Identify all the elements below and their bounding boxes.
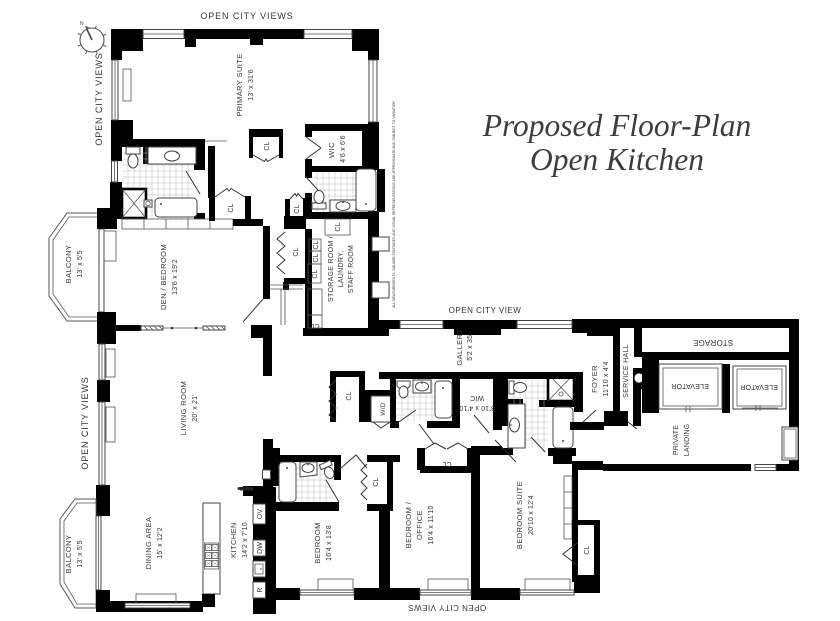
svg-text:ALL MEASUREMENTS, SQUARE FOOTA: ALL MEASUREMENTS, SQUARE FOOTAGES AND VI…: [392, 100, 396, 308]
svg-text:13' x 31'6: 13' x 31'6: [248, 69, 255, 101]
svg-text:ELEVATOR: ELEVATOR: [671, 382, 709, 389]
svg-text:W/D: W/D: [380, 402, 387, 415]
svg-text:BALCONY: BALCONY: [64, 245, 73, 284]
svg-text:CL: CL: [313, 253, 320, 262]
svg-text:OPEN CITY VIEWS: OPEN CITY VIEWS: [80, 376, 90, 469]
svg-text:OPEN CITY VIEWS: OPEN CITY VIEWS: [94, 52, 104, 145]
svg-text:BEDROOM: BEDROOM: [313, 522, 322, 564]
svg-text:CL: CL: [293, 247, 300, 256]
svg-text:20'10 x 12'4: 20'10 x 12'4: [528, 495, 535, 535]
svg-text:OFFICE: OFFICE: [415, 510, 424, 540]
svg-text:LAUNDRY,: LAUNDRY,: [338, 251, 345, 288]
svg-text:BEDROOM /: BEDROOM /: [404, 501, 413, 548]
svg-text:CL: CL: [294, 204, 301, 213]
svg-text:Proposed Floor-Plan: Proposed Floor-Plan: [482, 108, 752, 143]
svg-text:16'4 x 13'8: 16'4 x 13'8: [326, 525, 333, 561]
svg-text:OPEN CITY VIEW: OPEN CITY VIEW: [449, 306, 522, 315]
svg-text:CL: CL: [346, 391, 353, 400]
svg-text:CL: CL: [373, 477, 380, 486]
svg-text:14'2 x 7'10: 14'2 x 7'10: [242, 522, 249, 558]
svg-text:PRIMARY SUITE: PRIMARY SUITE: [235, 53, 244, 116]
svg-text:13' x 5'5: 13' x 5'5: [77, 250, 84, 277]
svg-text:OPEN CITY VIEWS: OPEN CITY VIEWS: [200, 11, 293, 21]
svg-text:STORAGE: STORAGE: [693, 338, 733, 347]
svg-text:WIC: WIC: [327, 142, 336, 158]
svg-text:CL: CL: [335, 222, 342, 231]
svg-text:WIC: WIC: [470, 394, 484, 401]
svg-text:SERVICE HALL: SERVICE HALL: [623, 344, 630, 398]
svg-text:BEDROOM SUITE: BEDROOM SUITE: [515, 481, 524, 549]
svg-text:13'6 x 19'2: 13'6 x 19'2: [172, 259, 179, 295]
svg-text:CL: CL: [442, 460, 451, 467]
svg-text:DINING AREA: DINING AREA: [144, 517, 153, 570]
svg-text:OPEN CITY VIEWS: OPEN CITY VIEWS: [408, 603, 486, 612]
svg-text:13' x 5'5: 13' x 5'5: [77, 540, 84, 567]
svg-text:STORAGE ROOM /: STORAGE ROOM /: [328, 236, 335, 302]
svg-text:20' x 21': 20' x 21': [192, 394, 199, 421]
svg-text:DW: DW: [257, 542, 264, 554]
svg-text:CL: CL: [228, 203, 235, 212]
svg-text:BALCONY: BALCONY: [64, 535, 73, 574]
svg-text:LANDING: LANDING: [684, 424, 691, 457]
svg-text:CL: CL: [264, 141, 271, 150]
svg-text:R: R: [257, 587, 264, 592]
svg-text:CL: CL: [312, 269, 319, 278]
svg-text:16'4 x 11'10: 16'4 x 11'10: [428, 505, 435, 544]
svg-text:5'2 x 35': 5'2 x 35': [467, 333, 474, 360]
svg-text:DEN / BEDROOM: DEN / BEDROOM: [159, 244, 168, 310]
svg-text:LIVING ROOM: LIVING ROOM: [179, 381, 188, 435]
svg-text:FOYER: FOYER: [590, 365, 599, 393]
svg-text:15' x 12'2: 15' x 12'2: [157, 527, 164, 559]
svg-text:11'10 x 4'4: 11'10 x 4'4: [603, 361, 610, 396]
svg-text:4'6 x 6'6: 4'6 x 6'6: [340, 135, 347, 162]
svg-text:3'10 x 4'10: 3'10 x 4'10: [459, 404, 495, 411]
svg-text:Open Kitchen: Open Kitchen: [530, 142, 704, 177]
svg-text:STAFF ROOM: STAFF ROOM: [348, 245, 355, 293]
svg-text:ELEVATOR: ELEVATOR: [740, 383, 778, 390]
svg-text:PRIVATE: PRIVATE: [673, 425, 680, 455]
svg-text:CL: CL: [584, 545, 591, 554]
svg-text:CL: CL: [310, 322, 319, 329]
svg-text:OV: OV: [257, 509, 264, 520]
svg-text:N: N: [80, 21, 84, 27]
svg-text:CL: CL: [313, 240, 320, 249]
svg-text:KITCHEN: KITCHEN: [229, 522, 238, 558]
svg-text:GALLERY: GALLERY: [455, 328, 464, 365]
